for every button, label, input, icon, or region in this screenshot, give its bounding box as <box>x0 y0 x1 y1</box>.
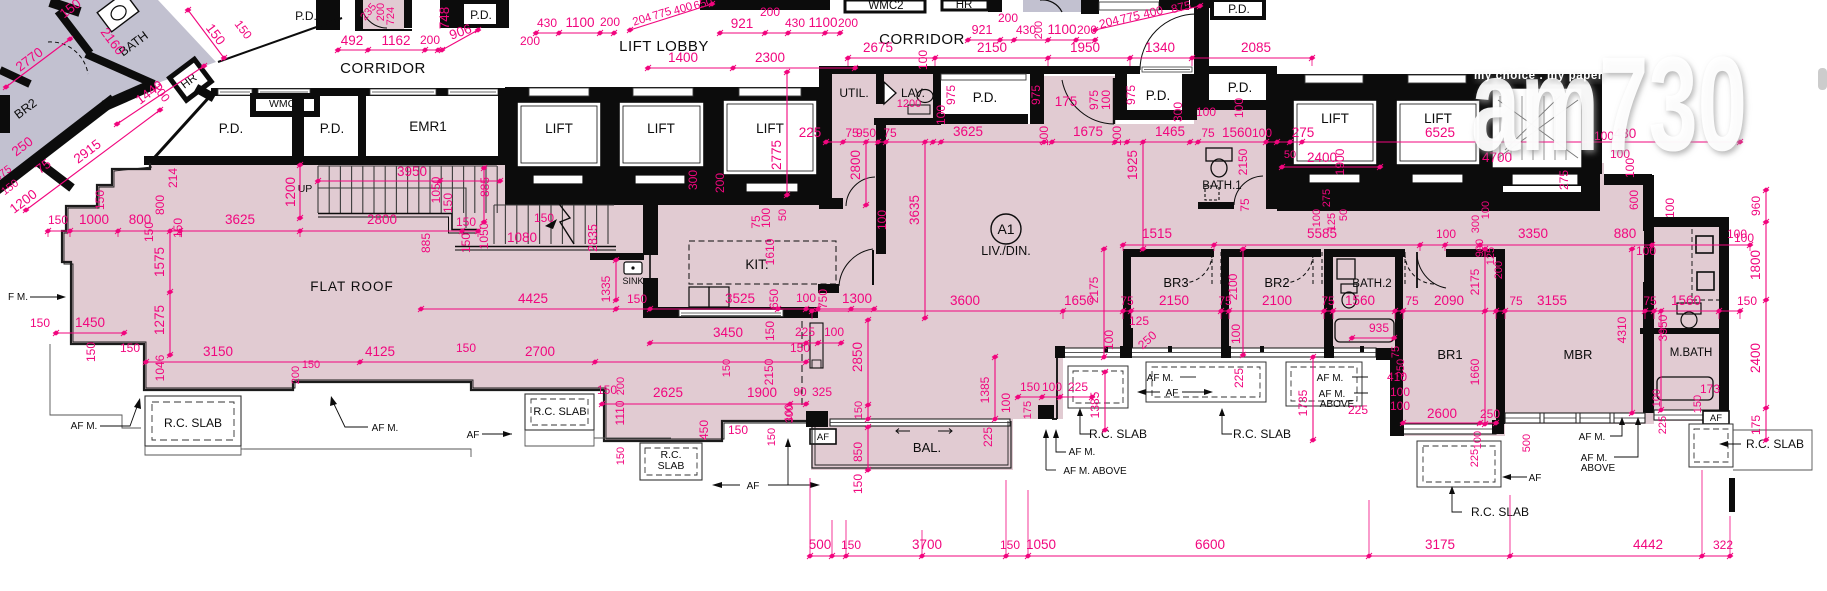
svg-text:430: 430 <box>785 16 805 30</box>
svg-text:300: 300 <box>1470 215 1482 233</box>
svg-text:100: 100 <box>1232 98 1246 118</box>
svg-text:200: 200 <box>713 173 727 193</box>
svg-text:880: 880 <box>1614 226 1637 241</box>
svg-text:2150: 2150 <box>762 358 776 385</box>
svg-text:P.D.: P.D. <box>1228 2 1250 16</box>
svg-text:960: 960 <box>1749 196 1763 216</box>
svg-text:175: 175 <box>1055 94 1078 109</box>
svg-text:300: 300 <box>686 170 700 190</box>
svg-text:214: 214 <box>166 168 180 188</box>
svg-text:150: 150 <box>1000 538 1020 552</box>
svg-text:200: 200 <box>760 5 780 19</box>
svg-text:150: 150 <box>721 359 733 377</box>
svg-text:1335: 1335 <box>599 275 613 302</box>
svg-text:2100: 2100 <box>1226 273 1240 300</box>
svg-text:P.D.: P.D. <box>295 9 317 23</box>
svg-text:150: 150 <box>841 538 861 552</box>
svg-text:P.D.: P.D. <box>219 121 244 136</box>
svg-text:200: 200 <box>600 15 620 29</box>
svg-text:1450: 1450 <box>75 315 105 330</box>
svg-text:1050: 1050 <box>477 222 491 249</box>
svg-text:100: 100 <box>1663 198 1677 218</box>
svg-text:F M.: F M. <box>8 292 28 303</box>
svg-text:1735: 1735 <box>1296 389 1310 416</box>
svg-text:75: 75 <box>1201 126 1215 140</box>
svg-text:3450: 3450 <box>713 325 743 340</box>
svg-text:am730: am730 <box>1471 30 1747 179</box>
svg-text:UTIL.: UTIL. <box>839 86 868 100</box>
svg-text:P.D.: P.D. <box>470 8 492 22</box>
svg-text:AF: AF <box>467 430 480 441</box>
svg-text:AF M.: AF M. <box>1317 373 1344 384</box>
svg-text:150: 150 <box>93 190 107 210</box>
svg-text:850: 850 <box>851 442 865 462</box>
svg-text:150: 150 <box>120 341 140 355</box>
svg-text:100: 100 <box>1390 385 1410 399</box>
svg-text:1660: 1660 <box>1468 358 1482 385</box>
svg-text:175: 175 <box>1022 401 1034 419</box>
svg-text:3625: 3625 <box>225 212 255 227</box>
svg-text:M.BATH: M.BATH <box>1670 347 1713 359</box>
svg-text:100: 100 <box>934 105 948 125</box>
svg-text:100: 100 <box>999 393 1013 413</box>
svg-text:650: 650 <box>767 289 781 309</box>
svg-text:200: 200 <box>1033 21 1045 39</box>
svg-text:200: 200 <box>838 16 858 30</box>
svg-text:748: 748 <box>437 7 452 30</box>
svg-text:410: 410 <box>1387 370 1407 384</box>
svg-text:100: 100 <box>824 325 844 339</box>
svg-text:P.D.: P.D. <box>1228 80 1253 95</box>
svg-text:SINK: SINK <box>622 276 643 286</box>
svg-text:150: 150 <box>302 359 320 371</box>
svg-text:AF: AF <box>1529 473 1542 484</box>
svg-text:BR2: BR2 <box>1264 275 1289 290</box>
svg-text:LAV.: LAV. <box>901 86 925 100</box>
svg-text:500: 500 <box>1521 434 1533 452</box>
svg-text:200: 200 <box>290 366 302 384</box>
svg-text:R.C. SLAB: R.C. SLAB <box>164 416 222 430</box>
svg-text:150: 150 <box>763 321 777 341</box>
svg-text:2175: 2175 <box>1087 276 1101 303</box>
svg-text:150: 150 <box>459 233 473 253</box>
svg-text:322: 322 <box>1713 538 1733 552</box>
svg-text:100: 100 <box>1110 126 1124 146</box>
svg-text:1465: 1465 <box>1155 124 1185 139</box>
svg-text:AF M.: AF M. <box>1069 447 1096 458</box>
svg-text:200: 200 <box>420 33 440 47</box>
svg-text:225: 225 <box>795 325 815 339</box>
svg-text:921: 921 <box>731 16 754 31</box>
svg-text:1100: 1100 <box>808 15 837 30</box>
svg-text:3600: 3600 <box>950 293 980 308</box>
svg-text:150: 150 <box>456 215 476 229</box>
svg-text:1080: 1080 <box>507 230 537 245</box>
svg-text:2100: 2100 <box>1262 293 1292 308</box>
svg-text:75: 75 <box>1120 294 1134 308</box>
svg-text:MBR: MBR <box>1564 347 1593 362</box>
svg-text:3950: 3950 <box>397 164 427 179</box>
svg-text:150: 150 <box>728 423 748 437</box>
svg-text:4310: 4310 <box>1615 316 1629 343</box>
svg-text:1925: 1925 <box>1125 150 1140 180</box>
svg-text:BR1: BR1 <box>1437 347 1462 362</box>
svg-text:921: 921 <box>972 23 993 37</box>
svg-text:1300: 1300 <box>842 291 872 306</box>
svg-text:SLAB: SLAB <box>658 460 685 472</box>
svg-text:275: 275 <box>1321 189 1333 207</box>
svg-text:3625: 3625 <box>953 124 983 139</box>
svg-text:75: 75 <box>1238 198 1252 212</box>
svg-text:1050: 1050 <box>1026 537 1056 552</box>
svg-text:R.C. SLAB: R.C. SLAB <box>1746 437 1804 451</box>
svg-text:1100: 1100 <box>1047 22 1076 37</box>
svg-text:100: 100 <box>1252 126 1272 140</box>
svg-text:1000: 1000 <box>79 212 109 227</box>
svg-text:2600: 2600 <box>1427 406 1457 421</box>
svg-text:1200: 1200 <box>283 177 298 207</box>
svg-text:1400: 1400 <box>668 50 698 65</box>
svg-text:150: 150 <box>766 428 778 446</box>
svg-text:HR: HR <box>956 0 973 11</box>
svg-text:3155: 3155 <box>1537 293 1567 308</box>
svg-text:1900: 1900 <box>1333 148 1347 175</box>
svg-text:6525: 6525 <box>1425 125 1455 140</box>
svg-text:R.C. SLAB: R.C. SLAB <box>1089 427 1147 441</box>
svg-text:75: 75 <box>1509 294 1523 308</box>
svg-text:100: 100 <box>1229 324 1243 344</box>
svg-text:LIFT: LIFT <box>1424 111 1452 126</box>
svg-text:325: 325 <box>812 385 832 399</box>
svg-text:150: 150 <box>1737 294 1757 308</box>
svg-text:LIFT: LIFT <box>1321 111 1349 126</box>
svg-text:3350: 3350 <box>1518 226 1548 241</box>
svg-text:CORRIDOR: CORRIDOR <box>340 60 426 77</box>
svg-text:1675: 1675 <box>1073 124 1103 139</box>
svg-text:LIFT: LIFT <box>756 121 784 136</box>
svg-text:1100: 1100 <box>565 15 594 30</box>
svg-text:200: 200 <box>615 377 627 395</box>
svg-text:3525: 3525 <box>725 291 755 306</box>
svg-text:WMC2: WMC2 <box>868 0 903 12</box>
svg-text:75: 75 <box>1390 346 1402 358</box>
svg-text:BATH.1: BATH.1 <box>1202 180 1241 192</box>
svg-text:AF: AF <box>747 481 760 492</box>
svg-text:600: 600 <box>1627 190 1641 210</box>
svg-text:R.C. SLAB: R.C. SLAB <box>1233 427 1291 441</box>
svg-text:2850: 2850 <box>850 342 865 372</box>
svg-text:225: 225 <box>1657 416 1669 434</box>
svg-text:150: 150 <box>853 401 865 419</box>
svg-text:1610: 1610 <box>763 238 777 265</box>
svg-text:150: 150 <box>171 218 185 238</box>
svg-text:LIFT: LIFT <box>545 121 573 136</box>
svg-text:3635: 3635 <box>907 195 922 225</box>
svg-text:3150: 3150 <box>203 344 233 359</box>
svg-text:1046: 1046 <box>153 354 167 381</box>
svg-text:150: 150 <box>1692 395 1704 413</box>
svg-text:100: 100 <box>759 208 773 228</box>
svg-text:100: 100 <box>1636 244 1656 258</box>
svg-text:2150: 2150 <box>977 40 1007 55</box>
svg-text:2150: 2150 <box>1236 148 1250 175</box>
svg-text:173: 173 <box>1700 382 1720 396</box>
svg-text:150: 150 <box>142 222 156 242</box>
svg-text:100: 100 <box>875 210 889 230</box>
svg-text:225: 225 <box>1232 368 1246 388</box>
svg-text:150: 150 <box>30 316 50 330</box>
svg-text:75: 75 <box>1405 294 1419 308</box>
svg-text:225: 225 <box>799 125 822 140</box>
svg-text:885: 885 <box>478 177 492 197</box>
svg-text:2800: 2800 <box>367 212 397 227</box>
svg-text:P.D.: P.D. <box>320 121 345 136</box>
svg-text:100: 100 <box>783 404 795 422</box>
svg-text:100: 100 <box>1390 399 1410 413</box>
svg-text:125: 125 <box>1129 314 1149 328</box>
svg-text:275: 275 <box>1292 125 1315 140</box>
svg-text:100: 100 <box>1311 209 1323 227</box>
svg-text:100: 100 <box>1102 330 1116 350</box>
svg-text:A1: A1 <box>997 221 1014 237</box>
svg-text:2085: 2085 <box>1241 40 1271 55</box>
svg-text:3175: 3175 <box>1425 537 1455 552</box>
svg-text:90: 90 <box>793 385 807 399</box>
svg-text:2300: 2300 <box>755 50 785 65</box>
svg-text:BAL.: BAL. <box>913 440 941 455</box>
svg-text:225: 225 <box>981 427 995 447</box>
svg-text:1575: 1575 <box>152 247 167 277</box>
svg-text:AF: AF <box>817 432 829 443</box>
svg-text:AF M.: AF M. <box>1147 373 1174 384</box>
svg-text:2400: 2400 <box>1748 343 1763 373</box>
svg-text:150: 150 <box>851 474 865 494</box>
svg-text:175: 175 <box>1749 415 1763 435</box>
svg-text:LIFT: LIFT <box>647 121 675 136</box>
svg-text:P.D.: P.D. <box>1146 88 1171 103</box>
svg-text:225: 225 <box>1068 380 1088 394</box>
svg-text:2800: 2800 <box>848 150 863 180</box>
svg-text:100: 100 <box>796 291 816 305</box>
svg-text:3950: 3950 <box>1656 314 1670 341</box>
svg-text:4125: 4125 <box>365 344 395 359</box>
svg-text:2625: 2625 <box>653 385 683 400</box>
svg-text:my choice . my paper: my choice . my paper <box>1474 70 1603 82</box>
svg-text:500: 500 <box>809 537 832 552</box>
svg-text:450: 450 <box>697 420 711 440</box>
svg-text:2175: 2175 <box>1468 268 1482 295</box>
svg-text:EMR1: EMR1 <box>409 119 447 134</box>
svg-text:200: 200 <box>1493 261 1505 279</box>
svg-text:75: 75 <box>1643 294 1657 308</box>
svg-text:75: 75 <box>1321 294 1335 308</box>
svg-text:1385: 1385 <box>1088 391 1102 418</box>
svg-text:150: 150 <box>1020 380 1040 394</box>
svg-text:200: 200 <box>520 34 540 48</box>
svg-text:1110: 1110 <box>613 400 627 425</box>
svg-text:935: 935 <box>1369 321 1389 335</box>
svg-text:1900: 1900 <box>747 385 777 400</box>
svg-text:FLAT ROOF: FLAT ROOF <box>310 279 394 294</box>
svg-text:150: 150 <box>534 211 554 225</box>
svg-text:2700: 2700 <box>525 344 555 359</box>
svg-text:4425: 4425 <box>518 291 548 306</box>
svg-text:1515: 1515 <box>1142 226 1172 241</box>
svg-text:150: 150 <box>441 193 455 213</box>
svg-text:1385: 1385 <box>978 376 992 403</box>
svg-text:2675: 2675 <box>863 40 893 55</box>
svg-text:3700: 3700 <box>912 537 942 552</box>
svg-text:R.C. SLAB: R.C. SLAB <box>533 406 586 418</box>
svg-text:250: 250 <box>1480 407 1500 421</box>
svg-text:300: 300 <box>1171 102 1185 122</box>
svg-text:1162: 1162 <box>381 33 410 48</box>
svg-text:1275: 1275 <box>152 305 167 335</box>
svg-text:1560: 1560 <box>1671 293 1701 308</box>
svg-text:1560: 1560 <box>1345 293 1375 308</box>
svg-text:1800: 1800 <box>1748 250 1763 280</box>
svg-text:492: 492 <box>341 33 364 48</box>
svg-text:ABOVE: ABOVE <box>1581 463 1616 474</box>
svg-text:50: 50 <box>777 209 789 221</box>
svg-text:100: 100 <box>1099 90 1113 110</box>
svg-text:AF M.: AF M. <box>1579 432 1606 443</box>
svg-text:100: 100 <box>916 50 930 70</box>
svg-text:R.C. SLAB: R.C. SLAB <box>1471 505 1529 519</box>
svg-text:150: 150 <box>456 341 476 355</box>
svg-text:800: 800 <box>153 195 167 215</box>
svg-text:50: 50 <box>1338 209 1350 221</box>
svg-text:100: 100 <box>1037 126 1051 146</box>
svg-text:AF M.: AF M. <box>71 421 98 432</box>
svg-text:1340: 1340 <box>1145 40 1175 55</box>
svg-text:2835: 2835 <box>586 224 600 252</box>
svg-text:100: 100 <box>1651 389 1663 407</box>
svg-text:885: 885 <box>419 233 433 253</box>
svg-text:AF: AF <box>1710 413 1722 424</box>
svg-text:BR3: BR3 <box>1163 275 1188 290</box>
svg-text:4442: 4442 <box>1633 537 1663 552</box>
svg-text:100: 100 <box>1734 231 1754 245</box>
svg-text:975: 975 <box>1029 85 1043 105</box>
svg-text:100: 100 <box>1436 227 1456 241</box>
svg-text:430: 430 <box>537 16 557 30</box>
svg-text:950: 950 <box>856 126 876 140</box>
svg-text:125: 125 <box>1326 213 1338 231</box>
svg-text:750: 750 <box>816 289 830 309</box>
svg-text:P.D.: P.D. <box>973 90 998 105</box>
svg-text:225: 225 <box>1348 403 1368 417</box>
svg-text:150: 150 <box>84 342 98 362</box>
svg-text:LIV./DIN.: LIV./DIN. <box>981 244 1031 258</box>
svg-text:150: 150 <box>615 447 627 465</box>
svg-text:100: 100 <box>1196 105 1216 119</box>
svg-text:2090: 2090 <box>1434 293 1464 308</box>
svg-text:AF: AF <box>1166 388 1179 399</box>
svg-text:75: 75 <box>883 126 897 140</box>
svg-text:1950: 1950 <box>1070 40 1100 55</box>
svg-text:2775: 2775 <box>769 140 784 170</box>
svg-text:150: 150 <box>48 213 68 227</box>
svg-text:150: 150 <box>627 292 647 306</box>
svg-text:100: 100 <box>1472 431 1484 449</box>
svg-text:975: 975 <box>1124 85 1138 105</box>
svg-text:2150: 2150 <box>1159 293 1189 308</box>
svg-text:6600: 6600 <box>1195 537 1225 552</box>
svg-text:AF M.: AF M. <box>372 423 399 434</box>
svg-text:BATH.2: BATH.2 <box>1352 278 1391 290</box>
svg-text:AF M. ABOVE: AF M. ABOVE <box>1063 466 1127 477</box>
svg-text:1560: 1560 <box>1222 125 1252 140</box>
svg-text:724: 724 <box>385 7 397 25</box>
svg-text:975: 975 <box>944 85 958 105</box>
svg-text:100: 100 <box>1042 380 1062 394</box>
svg-text:225: 225 <box>1469 449 1481 467</box>
svg-text:50: 50 <box>1284 149 1296 161</box>
